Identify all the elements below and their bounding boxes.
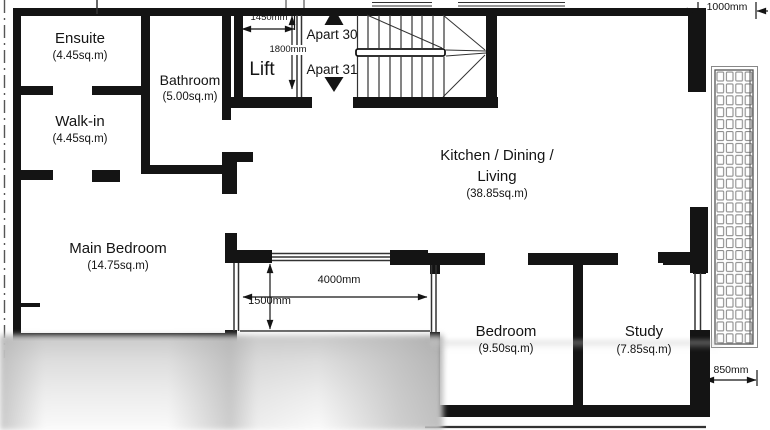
ensuite-area: (4.45sq.m) xyxy=(25,50,135,62)
study-area: (7.85sq.m) xyxy=(585,344,703,356)
blurred-region xyxy=(0,335,443,430)
kitchen-label-line1: Kitchen / Dining / xyxy=(432,148,562,164)
walk-in-area: (4.45sq.m) xyxy=(25,133,135,145)
bathroom-area: (5.00sq.m) xyxy=(150,91,230,103)
walk-in-label: Walk-in xyxy=(25,114,135,130)
apart-31-down-arrow-icon xyxy=(325,77,344,92)
kitchen-label-line2: Living xyxy=(432,169,562,185)
staircase xyxy=(356,15,486,97)
dim-lift-width-label: 1450mm xyxy=(240,13,298,23)
stairs-handrail xyxy=(356,49,445,56)
ensuite-label: Ensuite xyxy=(25,31,135,47)
bedroom-label: Bedroom xyxy=(446,324,566,340)
floor-plan: Ensuite (4.45sq.m) Bathroom (5.00sq.m) W… xyxy=(0,0,770,430)
dim-terrace-width-label: 4000mm xyxy=(310,275,368,287)
study-label: Study xyxy=(585,324,703,340)
apart-30-label: Apart 30 xyxy=(303,28,361,42)
dim-balcony-right-label: 850mm xyxy=(706,365,756,376)
apart-31-label: Apart 31 xyxy=(303,63,361,77)
kitchen-area: (38.85sq.m) xyxy=(432,188,562,200)
dim-terrace-depth-label: 1500mm xyxy=(242,296,297,308)
dim-lift-depth-label: 1800mm xyxy=(263,45,313,55)
right-balcony xyxy=(712,67,758,348)
lift-label: Lift xyxy=(240,60,284,80)
bedroom-area: (9.50sq.m) xyxy=(446,343,566,355)
dim-balcony-top-label: 1000mm xyxy=(700,2,754,13)
main-bedroom-area: (14.75sq.m) xyxy=(58,260,178,272)
main-bedroom-label: Main Bedroom xyxy=(58,241,178,257)
bathroom-label: Bathroom xyxy=(150,73,230,88)
